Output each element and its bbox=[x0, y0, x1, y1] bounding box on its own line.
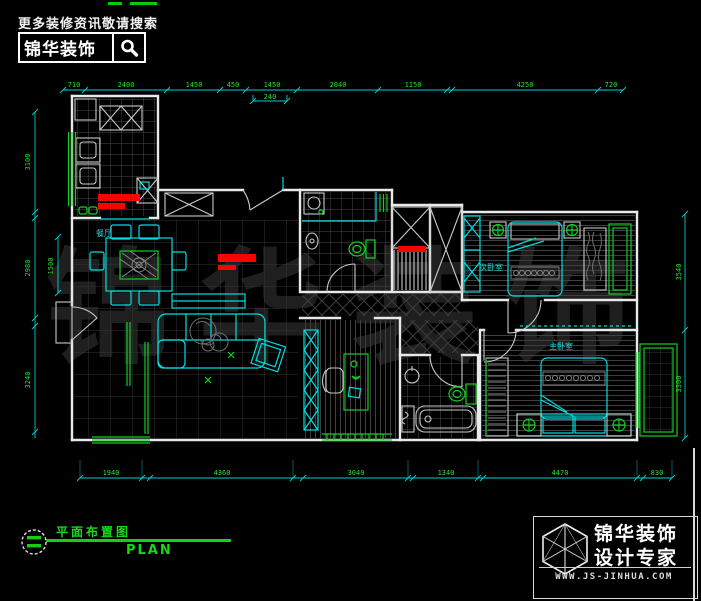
svg-text:1150: 1150 bbox=[405, 81, 422, 89]
room-label-master: 主卧室 bbox=[549, 341, 573, 351]
svg-text:4360: 4360 bbox=[214, 469, 231, 477]
kitchen-counter-red-highlight bbox=[98, 203, 125, 209]
svg-text:3240: 3240 bbox=[24, 372, 32, 389]
drawing-subtitle: PLAN bbox=[126, 543, 173, 558]
brand-divider bbox=[539, 567, 691, 568]
svg-text:710: 710 bbox=[68, 81, 81, 89]
svg-text:3100: 3100 bbox=[24, 154, 32, 171]
dining-red-highlight bbox=[218, 254, 256, 262]
brand-name: 锦华装饰 bbox=[594, 519, 678, 546]
floor-plan-canvas: 锦华装饰 bbox=[0, 0, 701, 601]
room-label-dining: 餐厅 bbox=[96, 229, 112, 238]
brand-url[interactable]: WWW.JS-JINHUA.COM bbox=[535, 572, 693, 582]
svg-text:1940: 1940 bbox=[103, 469, 120, 477]
svg-text:1450: 1450 bbox=[264, 81, 281, 89]
drawing-frame-edge bbox=[693, 448, 695, 601]
entry-shaft bbox=[165, 193, 213, 216]
section-marker-icon bbox=[19, 528, 49, 558]
svg-text:2040: 2040 bbox=[330, 81, 347, 89]
svg-text:450: 450 bbox=[227, 81, 240, 89]
cube-logo-icon bbox=[537, 521, 593, 577]
cad-floorplan-page: 更多装修资讯敬请搜索 锦华装饰 bbox=[0, 0, 701, 601]
svg-text:2400: 2400 bbox=[118, 81, 135, 89]
svg-text:3040: 3040 bbox=[348, 469, 365, 477]
svg-text:1340: 1340 bbox=[438, 469, 455, 477]
brand-tagline: 设计专家 bbox=[594, 543, 678, 570]
svg-text:830: 830 bbox=[651, 469, 664, 477]
svg-text:3300: 3300 bbox=[675, 376, 683, 393]
svg-text:720: 720 bbox=[605, 81, 618, 89]
svg-text:240: 240 bbox=[264, 93, 277, 101]
room-label-bed2: 次卧室 bbox=[479, 262, 503, 272]
drawing-title: 平面布置图 bbox=[56, 523, 131, 540]
svg-text:4470: 4470 bbox=[552, 469, 569, 477]
svg-text:2980: 2980 bbox=[24, 260, 32, 277]
svg-text:4250: 4250 bbox=[517, 81, 534, 89]
svg-text:1450: 1450 bbox=[186, 81, 203, 89]
stair-red-highlight bbox=[398, 246, 426, 252]
dimensions-bottom: 1940 4360 3040 1340 4470 830 bbox=[77, 460, 675, 481]
kitchen-counter-red-highlight bbox=[98, 194, 140, 201]
dining-red-highlight bbox=[218, 265, 236, 270]
svg-text:1500: 1500 bbox=[47, 258, 55, 275]
title-underline bbox=[46, 539, 231, 542]
svg-text:3540: 3540 bbox=[675, 264, 683, 281]
floor-patterns bbox=[74, 98, 673, 438]
